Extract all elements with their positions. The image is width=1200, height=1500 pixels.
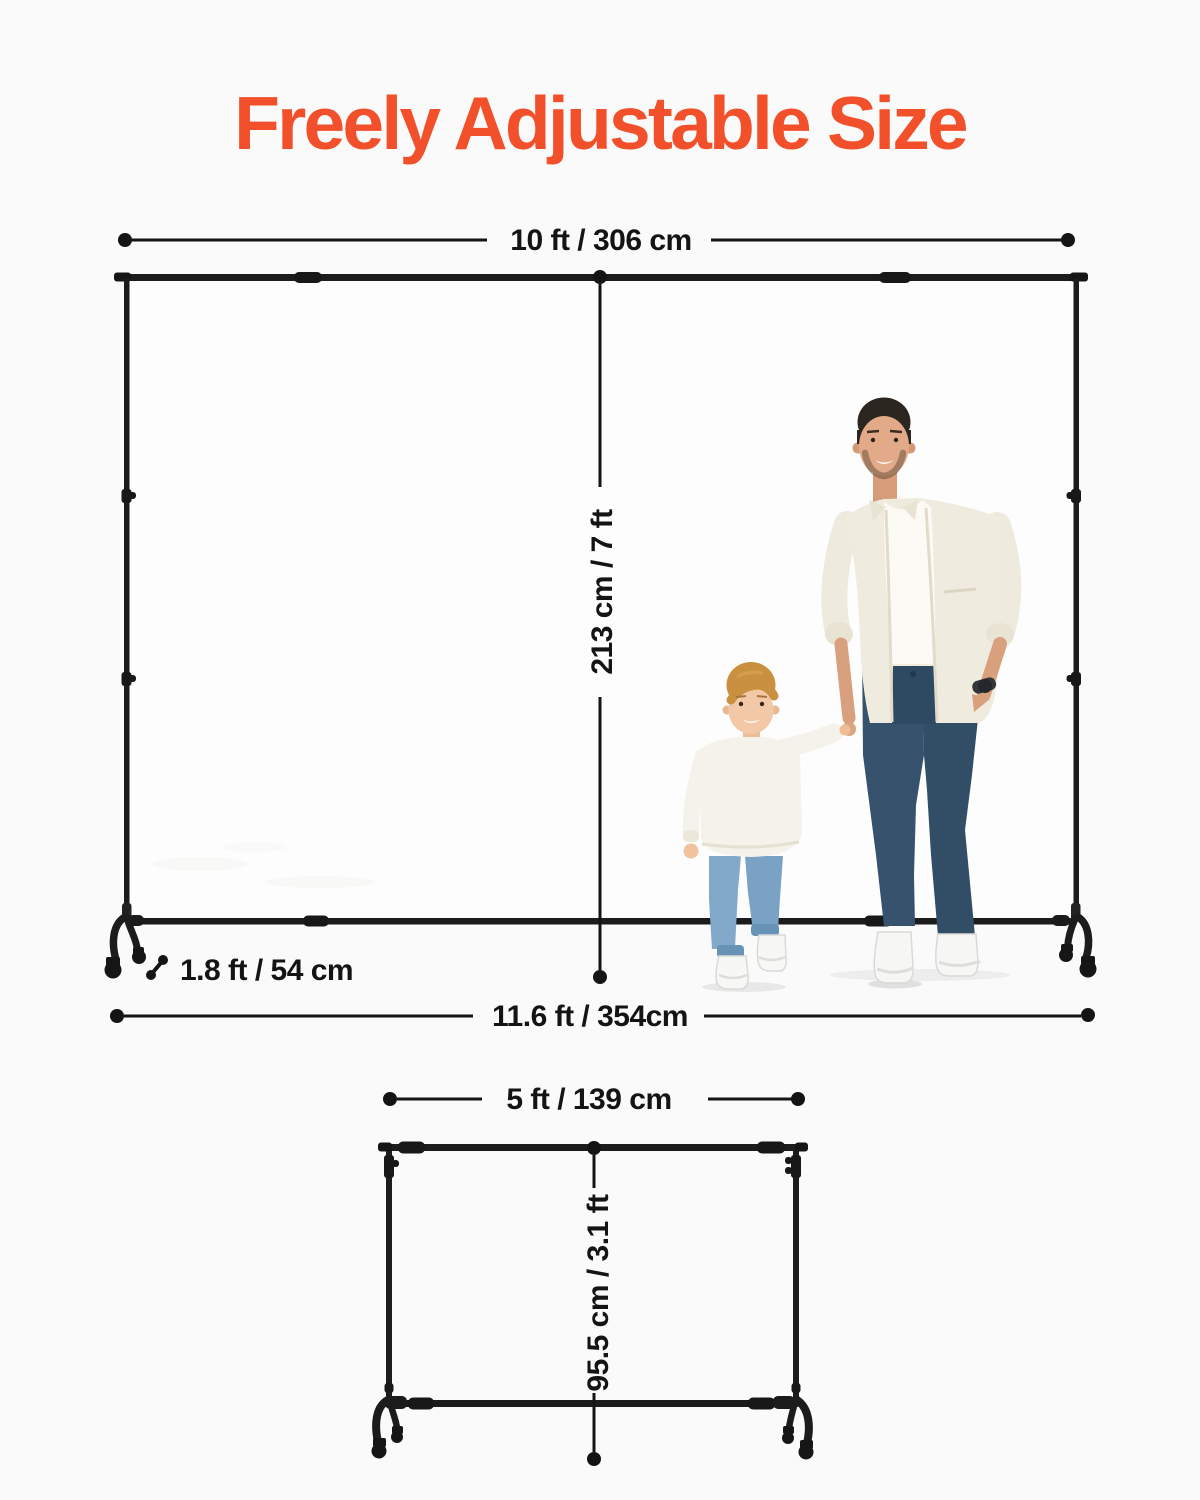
svg-text:95.5 cm / 3.1 ft: 95.5 cm / 3.1 ft	[582, 1194, 615, 1392]
svg-text:1.8 ft / 54 cm: 1.8 ft / 54 cm	[180, 954, 353, 987]
svg-text:Freely Adjustable Size: Freely Adjustable Size	[234, 81, 967, 165]
svg-text:5 ft / 139 cm: 5 ft / 139 cm	[506, 1083, 671, 1116]
svg-text:213 cm / 7 ft: 213 cm / 7 ft	[586, 509, 619, 675]
svg-text:11.6 ft / 354cm: 11.6 ft / 354cm	[492, 1000, 688, 1033]
svg-text:10 ft / 306 cm: 10 ft / 306 cm	[510, 224, 691, 257]
